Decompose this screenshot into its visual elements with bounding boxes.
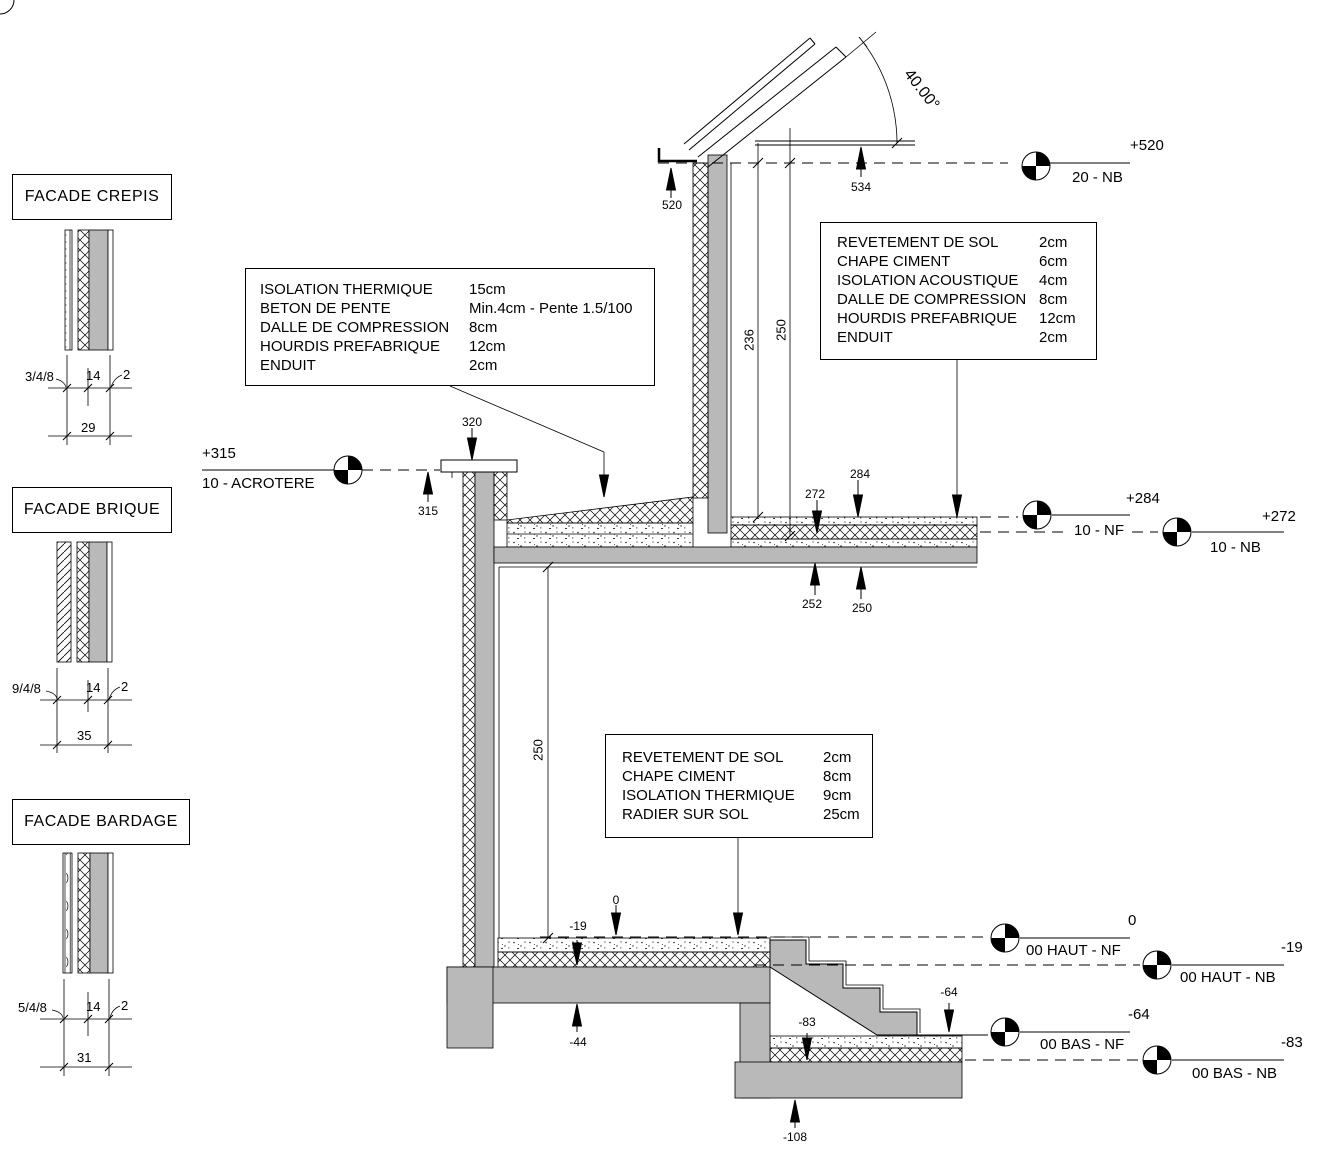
level-520-value: +520 (1130, 138, 1164, 153)
facade-brique-title: FACADE BRIQUE (24, 501, 160, 519)
level-0-value: 0 (1128, 913, 1136, 928)
brique-dim-layers: 9/4/8 (12, 682, 41, 695)
mark-320: 320 (462, 416, 482, 428)
level-284-name: 10 - NF (1074, 523, 1124, 538)
mark-m83: -83 (798, 1016, 815, 1028)
spec-name: DALLE DE COMPRESSION (260, 318, 469, 337)
spec-name: ENDUIT (260, 356, 469, 375)
mark-m64: -64 (940, 986, 957, 998)
spec-name: ISOLATION THERMIQUE (260, 280, 469, 299)
spec-value: 9cm (823, 786, 851, 805)
level-m83-name: 00 BAS - NB (1192, 1066, 1277, 1081)
spec-value: 8cm (1039, 290, 1067, 309)
facade-brique-title-box: FACADE BRIQUE (12, 487, 172, 533)
stairs (770, 937, 920, 1035)
spec-name: HOURDIS PREFABRIQUE (837, 309, 1039, 328)
spec-name: REVETEMENT DE SOL (837, 233, 1039, 252)
upper-wall (693, 155, 731, 533)
spec-value: 4cm (1039, 271, 1067, 290)
mark-0: 0 (613, 894, 620, 906)
spec-value: 2cm (1039, 328, 1067, 347)
floor-spec-box: REVETEMENT DE SOL2cm CHAPE CIMENT6cm ISO… (820, 222, 1097, 360)
spec-value: 8cm (469, 318, 497, 337)
mark-284: 284 (850, 468, 870, 480)
spec-name: ISOLATION ACOUSTIQUE (837, 271, 1039, 290)
facade-brique-detail (40, 542, 132, 753)
crepis-dim-layers: 3/4/8 (25, 370, 54, 383)
dim-250-upper: 250 (775, 319, 788, 341)
mark-252: 252 (802, 598, 822, 610)
facade-crepis-title-box: FACADE CREPIS (12, 174, 172, 220)
level-m64-name: 00 BAS - NF (1040, 1037, 1124, 1052)
spec-value: 15cm (469, 280, 506, 299)
level-m83-value: -83 (1281, 1035, 1303, 1050)
spec-name: ISOLATION THERMIQUE (622, 786, 823, 805)
bardage-dim-total: 31 (77, 1051, 91, 1064)
spec-name: RADIER SUR SOL (622, 805, 823, 824)
roof-spec-box: ISOLATION THERMIQUE15cm BETON DE PENTEMi… (245, 268, 655, 386)
mark-m44: -44 (569, 1036, 586, 1048)
level-m19-value: -19 (1281, 940, 1303, 955)
facade-crepis-title: FACADE CREPIS (25, 188, 160, 206)
spec-value: 6cm (1039, 252, 1067, 271)
ground-floor (447, 938, 770, 1048)
facade-bardage-title: FACADE BARDAGE (24, 813, 178, 831)
facade-bardage-detail (40, 853, 132, 1076)
level-0-name: 00 HAUT - NF (1026, 943, 1121, 958)
level-284-value: +284 (1126, 491, 1160, 506)
spec-value: 25cm (823, 805, 860, 824)
spec-value: 8cm (823, 767, 851, 786)
spec-name: BETON DE PENTE (260, 299, 469, 318)
spec-name: HOURDIS PREFABRIQUE (260, 337, 469, 356)
spec-value: 2cm (469, 356, 497, 375)
brique-dim-finish: 2 (121, 680, 128, 693)
roof-slope (659, 32, 915, 167)
level-m19-name: 00 HAUT - NB (1180, 970, 1276, 985)
terrace-layers (507, 497, 693, 547)
crepis-dim-total: 29 (81, 421, 95, 434)
crepis-dim-finish: 2 (123, 368, 130, 381)
spec-value: 2cm (1039, 233, 1067, 252)
brique-dim-core: 14 (86, 681, 100, 694)
bardage-dim-core: 14 (86, 1000, 100, 1013)
crepis-dim-core: 14 (86, 369, 100, 382)
spec-value: 12cm (469, 337, 506, 356)
level-315-name: 10 - ACROTERE (202, 476, 315, 491)
architectural-section-drawing: FACADE CREPIS FACADE BRIQUE FACADE BARDA… (0, 0, 1322, 1156)
mark-534: 534 (851, 181, 871, 193)
spec-name: CHAPE CIMENT (837, 252, 1039, 271)
facade-bardage-title-box: FACADE BARDAGE (12, 799, 190, 845)
lower-wall (463, 472, 507, 967)
brique-dim-total: 35 (77, 729, 91, 742)
mark-272: 272 (805, 488, 825, 500)
mark-520: 520 (662, 199, 682, 211)
gutter (659, 148, 697, 161)
dim-250-lower: 250 (532, 739, 545, 761)
spec-name: REVETEMENT DE SOL (622, 748, 823, 767)
spec-value: 12cm (1039, 309, 1076, 328)
bardage-dim-layers: 5/4/8 (18, 1001, 47, 1014)
spec-name: DALLE DE COMPRESSION (837, 290, 1039, 309)
spec-name: CHAPE CIMENT (622, 767, 823, 786)
level-272-value: +272 (1262, 509, 1296, 524)
dim-236: 236 (743, 329, 756, 351)
section-linework (0, 0, 1322, 1156)
spec-value: 2cm (823, 748, 851, 767)
mark-m108: -108 (783, 1131, 807, 1143)
level-m64-value: -64 (1128, 1007, 1150, 1022)
level-520-name: 20 - NB (1072, 170, 1123, 185)
mark-250u: 250 (852, 602, 872, 614)
level-272-name: 10 - NB (1210, 540, 1261, 555)
mark-315: 315 (418, 505, 438, 517)
mark-m19: -19 (569, 920, 586, 932)
bardage-dim-finish: 2 (121, 999, 128, 1012)
spec-name: ENDUIT (837, 328, 1039, 347)
spec-value: Min.4cm - Pente 1.5/100 (469, 299, 632, 318)
level-315-value: +315 (202, 446, 236, 461)
facade-crepis-detail (48, 230, 132, 445)
ground-spec-box: REVETEMENT DE SOL2cm CHAPE CIMENT8cm ISO… (605, 734, 873, 838)
